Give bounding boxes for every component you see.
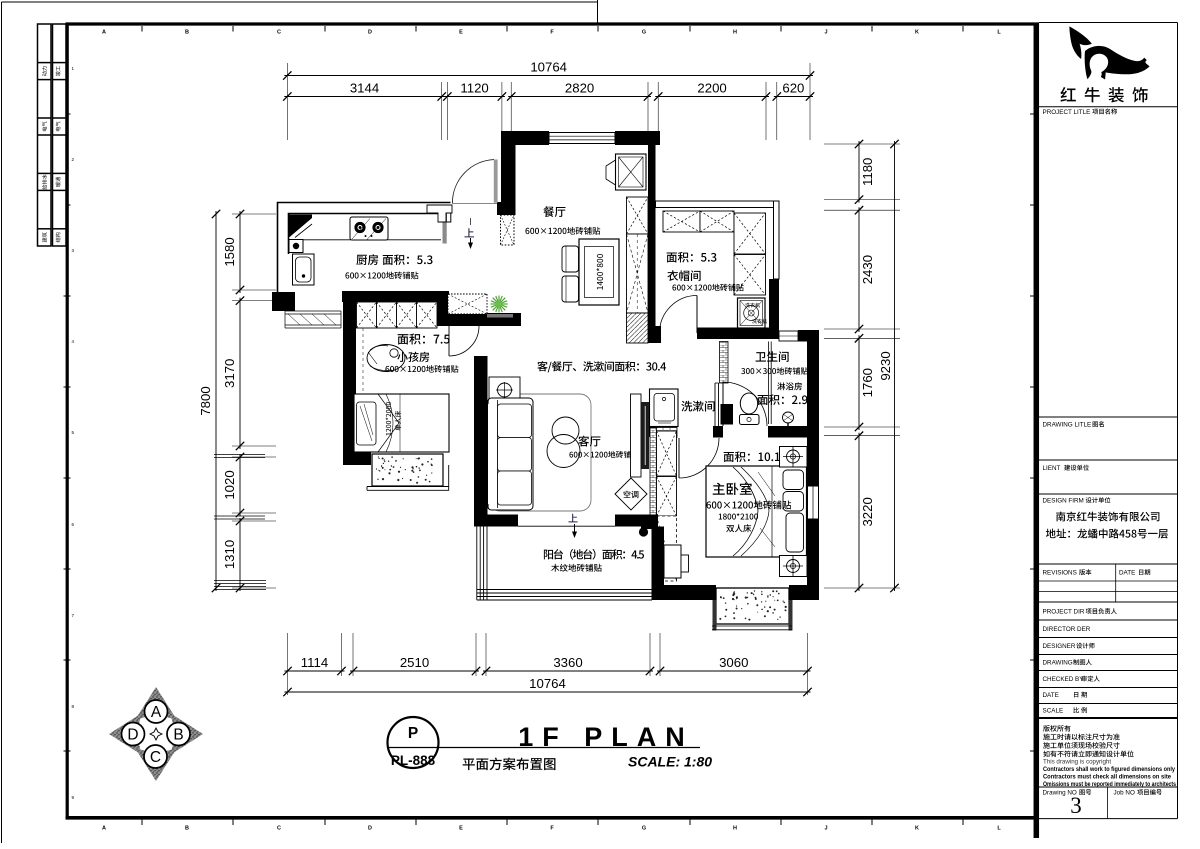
svg-text:LIENT: LIENT (1043, 465, 1061, 472)
svg-text:10764: 10764 (530, 60, 567, 75)
svg-text:1180: 1180 (860, 158, 875, 186)
svg-text:DIRECTOR DER: DIRECTOR DER (1043, 626, 1091, 633)
svg-text:3060: 3060 (719, 655, 748, 670)
svg-text:1580: 1580 (222, 237, 237, 266)
svg-text:10764: 10764 (529, 676, 566, 691)
svg-text:2820: 2820 (565, 81, 594, 96)
svg-text:3144: 3144 (350, 81, 379, 96)
svg-text:K: K (915, 30, 919, 36)
svg-text:Contractors must check all dim: Contractors must check all dimensions on… (1043, 774, 1172, 781)
svg-text:DESIGN FIRM: DESIGN FIRM (1043, 498, 1084, 505)
svg-text:REVISIONS: REVISIONS (1043, 570, 1077, 577)
svg-text:D: D (368, 826, 372, 832)
svg-text:2430: 2430 (860, 255, 875, 284)
svg-text:A: A (151, 704, 162, 721)
svg-text:1310: 1310 (222, 540, 237, 569)
svg-text:3220: 3220 (860, 497, 875, 526)
svg-text:3170: 3170 (222, 359, 237, 388)
svg-text:B: B (173, 727, 183, 744)
svg-text:G: G (642, 30, 646, 36)
svg-text:1120: 1120 (460, 81, 488, 96)
svg-text:C: C (150, 749, 161, 766)
svg-text:K: K (915, 826, 919, 832)
svg-text:620: 620 (782, 81, 804, 96)
svg-text:E: E (459, 30, 463, 36)
svg-text:1760: 1760 (860, 368, 875, 397)
svg-text:3: 3 (1070, 793, 1082, 818)
svg-text:DATE: DATE (1043, 692, 1059, 699)
svg-text:J: J (824, 30, 827, 36)
svg-text:SCALE: SCALE (1043, 708, 1064, 715)
svg-text:7800: 7800 (198, 386, 213, 415)
svg-text:D: D (127, 727, 138, 744)
svg-text:This drawing is copyright: This drawing is copyright (1043, 759, 1111, 766)
svg-text:P: P (408, 725, 418, 742)
svg-text:H: H (733, 826, 737, 832)
svg-text:3360: 3360 (553, 655, 582, 670)
svg-text:PROJECT LITLE: PROJECT LITLE (1043, 109, 1091, 116)
svg-text:1114: 1114 (301, 655, 328, 670)
svg-text:1020: 1020 (222, 470, 237, 499)
svg-text:PL-888: PL-888 (391, 753, 436, 768)
svg-text:E: E (459, 826, 463, 832)
svg-text:CHECKED BY: CHECKED BY (1043, 676, 1085, 683)
svg-text:Contractors shall work to figu: Contractors shall work to figured dimens… (1043, 766, 1175, 773)
svg-text:9230: 9230 (878, 351, 893, 380)
svg-text:2510: 2510 (400, 655, 429, 670)
svg-text:SCALE: 1:80: SCALE: 1:80 (628, 754, 712, 770)
svg-text:A: A (102, 30, 106, 36)
svg-text:B: B (185, 30, 189, 36)
svg-text:H: H (733, 30, 737, 36)
svg-text:DRAWING LITLE: DRAWING LITLE (1043, 422, 1092, 429)
svg-text:DESIGNER: DESIGNER (1043, 643, 1076, 650)
svg-text:J: J (824, 826, 827, 832)
svg-text:D: D (368, 30, 372, 36)
svg-text:G: G (642, 826, 646, 832)
svg-text:Omissions must be reported imm: Omissions must be reported immediately t… (1043, 782, 1177, 788)
svg-text:DRAWING: DRAWING (1043, 660, 1073, 667)
svg-text:B: B (185, 826, 189, 832)
svg-text:A: A (102, 826, 106, 832)
svg-text:1F PLAN: 1F PLAN (518, 722, 694, 752)
svg-text:DATE: DATE (1119, 570, 1135, 577)
svg-text:2200: 2200 (697, 81, 726, 96)
svg-text:PROJECT DIR: PROJECT DIR (1043, 609, 1085, 616)
svg-text:C: C (277, 826, 281, 832)
svg-text:C: C (277, 30, 281, 36)
svg-text:Job NO: Job NO (1114, 790, 1135, 797)
